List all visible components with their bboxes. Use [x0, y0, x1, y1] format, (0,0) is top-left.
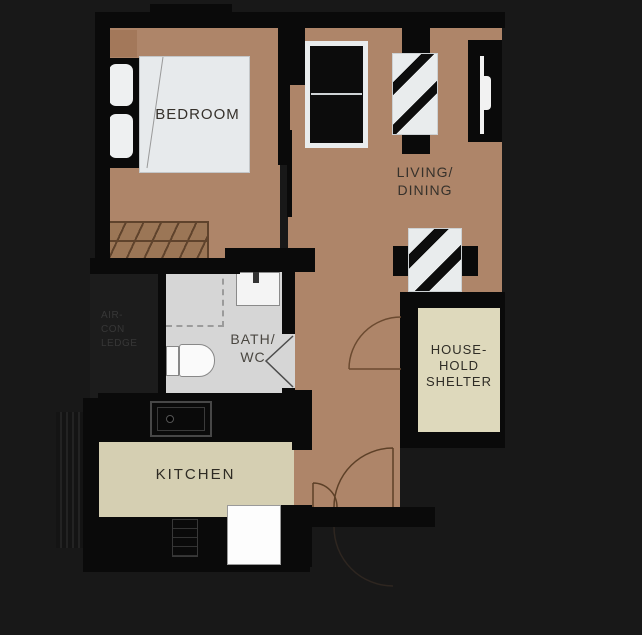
toilet-icon [166, 346, 179, 376]
chair-icon [462, 246, 478, 276]
dining-table-icon [408, 228, 462, 292]
wall-bath-top [225, 248, 315, 272]
desk-icon [392, 53, 438, 135]
stove-icon [172, 519, 198, 557]
chair-icon [393, 246, 408, 276]
wardrobe-rail [109, 240, 207, 242]
kitchen-sink-drain [166, 415, 174, 423]
kitchen-sink-icon [150, 401, 212, 437]
pillow-icon [109, 64, 133, 106]
wall-bedroom-living-thin [287, 130, 292, 217]
toilet-bowl-icon [179, 344, 215, 377]
bedside-cabinet-icon [108, 30, 137, 57]
wall-bath-right-upper [282, 268, 295, 334]
aircon-ledge-label: AIR- CON LEDGE [101, 309, 163, 351]
household-shelter-label: HOUSE- HOLD SHELTER [418, 342, 500, 390]
pillow-icon [109, 114, 133, 158]
bedroom-label: BEDROOM [150, 106, 245, 123]
tv-bracket [484, 76, 491, 110]
fridge-icon [227, 505, 281, 565]
wall-entrance-threshold [288, 507, 435, 527]
wall-kitchen-right [292, 390, 312, 450]
louver-icon [56, 412, 84, 548]
sofa-icon [305, 41, 368, 148]
outswing-gate-arc-icon [334, 527, 393, 586]
shower-icon [166, 268, 224, 327]
tap-icon [253, 272, 259, 283]
chair-icon [402, 28, 430, 53]
floor-plan: BEDROOM LIVING/ DINING BATH/ WC KITCHEN … [0, 0, 642, 635]
chair-icon [402, 135, 430, 154]
kitchen-sink-basin [157, 407, 205, 431]
bath-wc-label: BATH/ WC [222, 330, 284, 366]
living-dining-label: LIVING/ DINING [388, 163, 462, 199]
sofa-cushion-divider [311, 93, 362, 95]
wall-bedroom-living-upper [278, 12, 305, 85]
wall-left-lower [83, 398, 99, 570]
kitchen-label: KITCHEN [118, 466, 273, 483]
wall-top-duct [150, 4, 232, 14]
wall-left [95, 12, 110, 274]
wardrobe-icon [107, 221, 209, 260]
